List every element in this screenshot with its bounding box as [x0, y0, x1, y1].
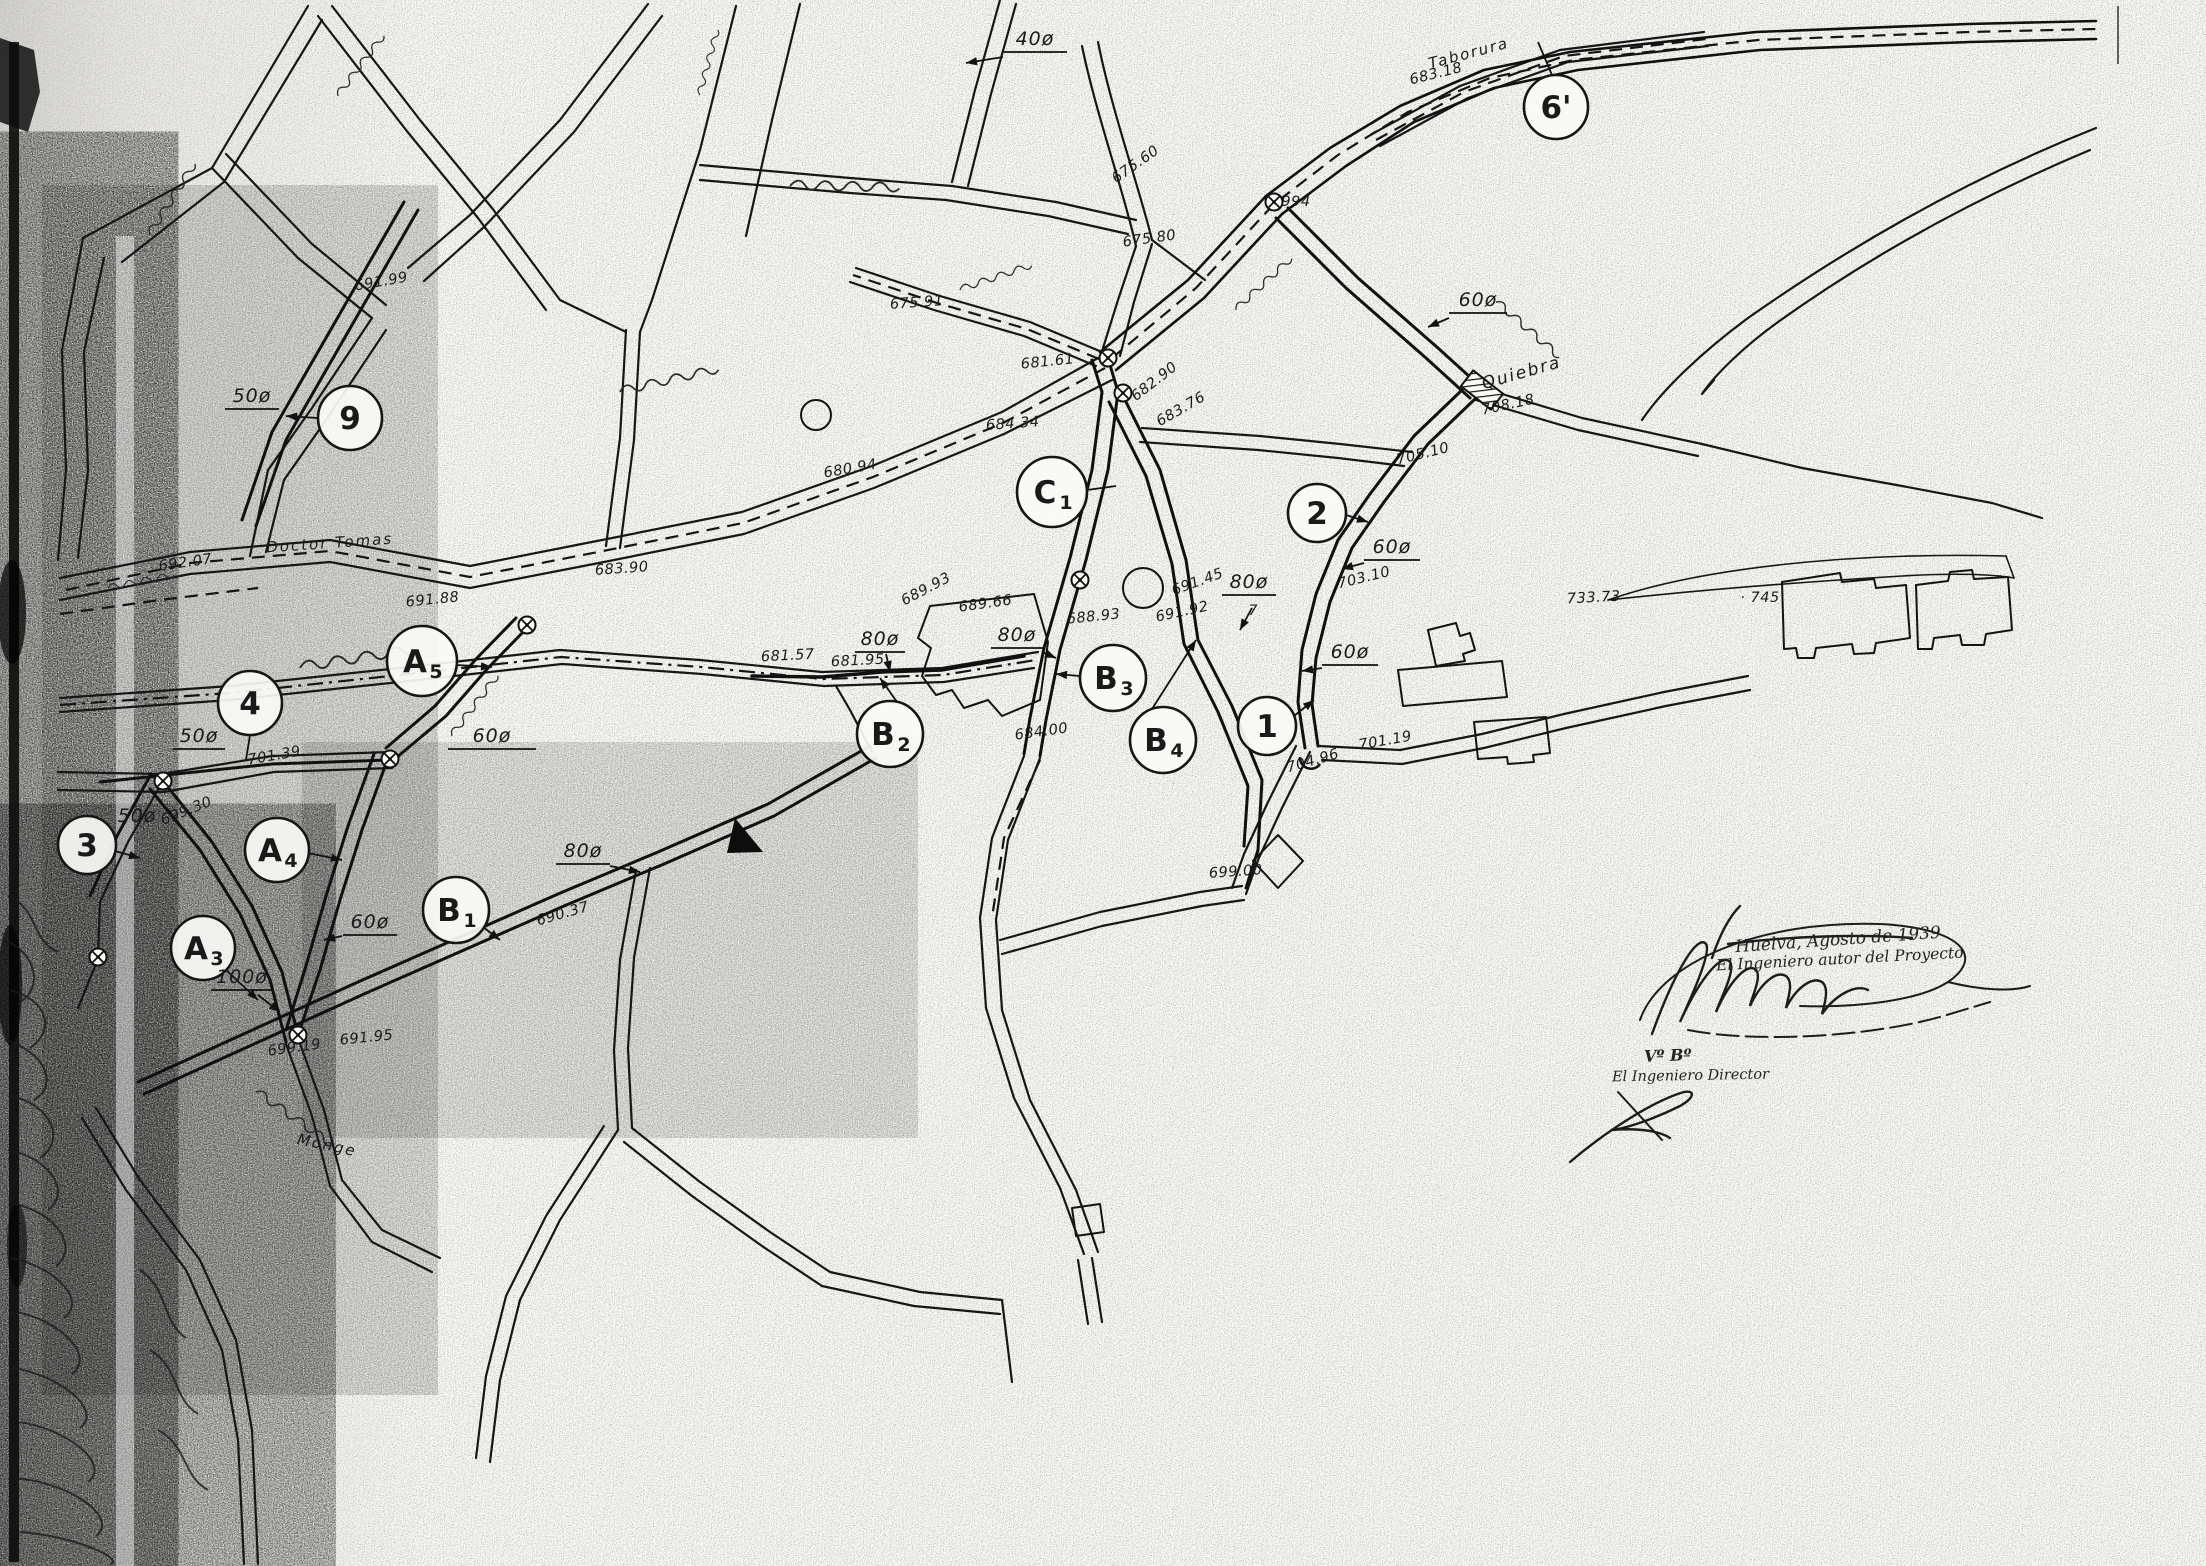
- node-label: A: [258, 833, 282, 869]
- valve-icon: [388, 757, 392, 761]
- pipe-diameter-label: 60ø: [1373, 536, 1412, 558]
- pipe-diameter-label: 50ø: [118, 805, 157, 827]
- scan-noise: [0, 0, 2206, 1566]
- scanned-map-sheet: 943A5A4A3B1B2B3B4C1126'40ø50ø50ø50ø60ø60…: [0, 0, 2206, 1566]
- node-label-subscript: 2: [897, 734, 910, 756]
- pipe-diameter-label: 50ø: [233, 385, 272, 407]
- pipe-diameter-label: 80ø: [1230, 571, 1269, 593]
- node-label: 2: [1306, 496, 1328, 532]
- node-label: B: [1144, 723, 1168, 759]
- node-label-subscript: 4: [1170, 740, 1183, 762]
- pipe-diameter-label: 40ø: [1016, 28, 1055, 50]
- valve-icon: [296, 1033, 300, 1037]
- valve-icon: [96, 955, 100, 959]
- pipe-diameter-label: 100ø: [216, 966, 268, 988]
- node-label: B: [871, 717, 895, 753]
- node-label: 9: [339, 401, 361, 437]
- node-label-subscript: 1: [1059, 492, 1072, 514]
- pipe-diameter-label: 80ø: [861, 628, 900, 650]
- pipe-diameter-label: 60ø: [473, 725, 512, 747]
- node-label-subscript: 3: [1120, 678, 1133, 700]
- pipe-diameter-label: 60ø: [1459, 289, 1498, 311]
- map-canvas: 943A5A4A3B1B2B3B4C1126'40ø50ø50ø50ø60ø60…: [0, 0, 2206, 1566]
- elevation-label: 681.57: [761, 647, 816, 666]
- valve-icon: [161, 779, 165, 783]
- node-label: 1: [1256, 709, 1278, 745]
- elevation-label: 733.73: [1567, 589, 1622, 608]
- node-label: 3: [76, 828, 98, 864]
- valve-icon: [1272, 200, 1276, 204]
- node-label: A: [403, 644, 427, 680]
- valve-icon: [1106, 356, 1110, 360]
- node-label: 6': [1540, 90, 1571, 126]
- pipe-diameter-label: 80ø: [998, 624, 1037, 646]
- elevation-label: · 745: [1740, 590, 1779, 606]
- valve-icon: [1078, 578, 1082, 582]
- elevation-label: 994: [1281, 194, 1310, 210]
- node-label: A: [184, 931, 208, 967]
- node-label-subscript: 4: [284, 850, 297, 872]
- pipe-diameter-label: 60ø: [1331, 641, 1370, 663]
- pipe-diameter-label: 50ø: [180, 725, 219, 747]
- pipe-diameter-label: 80ø: [564, 840, 603, 862]
- node-label: B: [437, 893, 461, 929]
- valve-icon: [1121, 391, 1125, 395]
- node-label: B: [1094, 661, 1118, 697]
- node-label-subscript: 5: [429, 661, 442, 683]
- elevation-label: 681.95: [831, 652, 886, 671]
- node-label: 4: [239, 686, 261, 722]
- pipe-diameter-label: 60ø: [351, 911, 390, 933]
- valve-icon: [525, 623, 529, 627]
- node-label-subscript: 1: [463, 910, 476, 932]
- node-label: C: [1034, 475, 1057, 511]
